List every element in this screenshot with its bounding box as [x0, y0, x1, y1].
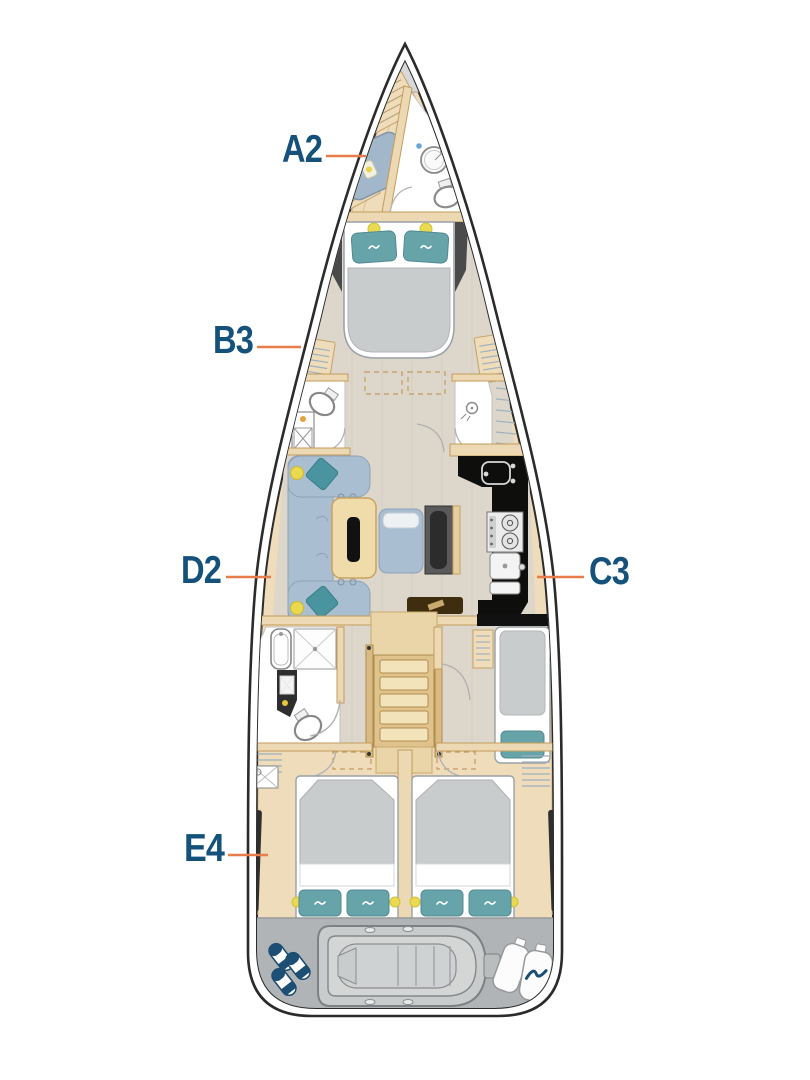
sink-icon [294, 428, 312, 449]
aft-cabin-bed-starboard [410, 776, 518, 922]
aft-cabin-bed-port [292, 776, 400, 922]
wall [337, 627, 344, 703]
deck-plan-svg: A2 B3 C3 D2 E4 [0, 0, 810, 1080]
reading-light [390, 897, 400, 907]
bathtub-icon [271, 629, 291, 669]
cabin-label-d2: D2 [181, 549, 221, 592]
stove-icon [487, 512, 523, 552]
wall [434, 627, 442, 669]
pillow [421, 890, 463, 916]
pillow [347, 890, 389, 916]
saloon-chaise [379, 509, 423, 573]
companionway-stairs [366, 612, 442, 773]
pillow [351, 231, 397, 264]
wall [286, 448, 350, 455]
cabin-label-b3: B3 [213, 319, 253, 362]
aft-bathroom [252, 627, 344, 745]
round-cushion [291, 467, 304, 480]
hull-window [500, 282, 518, 337]
wall [436, 743, 556, 751]
wall [250, 743, 372, 751]
sink-icon [280, 676, 294, 694]
owner-bed [344, 222, 454, 358]
pillow [469, 890, 511, 916]
aft-cabin-divider [398, 750, 412, 922]
saloon-table [332, 498, 376, 578]
pillow [299, 890, 341, 916]
reading-light [410, 897, 420, 907]
round-cushion [291, 602, 304, 615]
cabin-label-c3: C3 [589, 550, 629, 593]
fore-bulkhead [298, 212, 512, 222]
transom-garage [248, 918, 562, 1018]
cabin-label-a2: A2 [282, 128, 322, 171]
locker-band [477, 614, 555, 626]
hull-window [291, 283, 309, 338]
dinghy [318, 926, 500, 1006]
pillow [403, 231, 449, 264]
shower-pan-icon [294, 629, 336, 669]
yacht-deck-plan: A2 B3 C3 D2 E4 [0, 0, 810, 1080]
cabin-label-e4: E4 [184, 827, 225, 870]
galley-double-sink-icon [490, 553, 525, 594]
